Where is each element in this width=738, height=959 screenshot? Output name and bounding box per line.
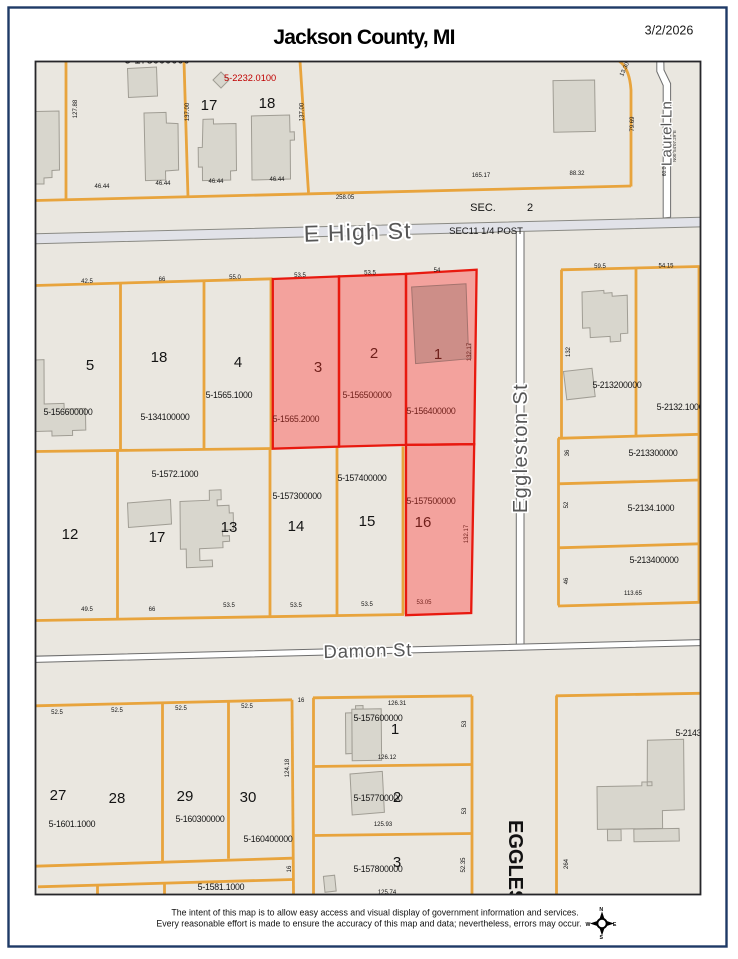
svg-text:3: 3 [314, 359, 322, 376]
svg-text:17: 17 [149, 529, 166, 546]
svg-text:N: N [599, 907, 603, 913]
svg-text:5-157700000: 5-157700000 [353, 793, 402, 803]
svg-text:E: E [613, 922, 617, 928]
svg-text:Laurel Ln: Laurel Ln [659, 101, 676, 166]
svg-text:5-134100000: 5-134100000 [140, 412, 189, 422]
svg-text:5-160300000: 5-160300000 [175, 814, 224, 824]
svg-text:5-156600000: 5-156600000 [43, 407, 92, 417]
svg-text:55.0: 55.0 [229, 275, 241, 281]
svg-text:27: 27 [50, 787, 67, 804]
svg-text:137.00: 137.00 [185, 102, 191, 121]
svg-text:52.5: 52.5 [111, 708, 123, 714]
svg-text:2: 2 [370, 345, 378, 362]
svg-text:5-2134.1000: 5-2134.1000 [628, 503, 675, 513]
svg-text:165.17: 165.17 [472, 173, 491, 179]
svg-text:1: 1 [434, 346, 442, 363]
svg-text:264: 264 [564, 858, 570, 869]
svg-text:28: 28 [109, 790, 126, 807]
svg-text:52.5: 52.5 [175, 706, 187, 712]
svg-text:52: 52 [564, 501, 570, 508]
svg-text:52.5: 52.5 [51, 710, 63, 716]
svg-text:13: 13 [221, 519, 238, 536]
svg-text:5-156400000: 5-156400000 [406, 406, 455, 416]
svg-text:5-1565.2000: 5-1565.2000 [273, 414, 320, 424]
svg-text:5-1581.1000: 5-1581.1000 [198, 882, 245, 892]
svg-text:127.88: 127.88 [73, 99, 79, 118]
svg-text:124.18: 124.18 [285, 758, 291, 777]
svg-text:5-1572.1000: 5-1572.1000 [152, 469, 199, 479]
svg-text:SEC11 1/4 POST: SEC11 1/4 POST [449, 226, 523, 237]
svg-text:5-2132.1000: 5-2132.1000 [657, 402, 704, 412]
svg-text:E High St: E High St [303, 217, 412, 246]
svg-text:53.05: 53.05 [416, 600, 432, 606]
svg-text:12: 12 [62, 526, 79, 543]
svg-text:5-160400000: 5-160400000 [243, 834, 292, 844]
svg-text:18: 18 [259, 95, 276, 112]
svg-text:29: 29 [177, 788, 194, 805]
svg-text:5-156500000: 5-156500000 [342, 390, 391, 400]
svg-text:SEC.: SEC. [470, 202, 496, 214]
svg-text:5-2232.0100: 5-2232.0100 [224, 73, 276, 83]
svg-text:5-1601.1000: 5-1601.1000 [49, 819, 96, 829]
svg-text:42.5: 42.5 [81, 279, 93, 285]
svg-text:66: 66 [149, 607, 156, 613]
svg-text:46.44: 46.44 [94, 184, 110, 190]
svg-text:3/2/2026: 3/2/2026 [645, 24, 694, 38]
svg-text:132.17: 132.17 [467, 342, 473, 361]
svg-text:5-213400000: 5-213400000 [629, 555, 678, 565]
svg-text:132.17: 132.17 [464, 524, 470, 543]
svg-text:17: 17 [201, 97, 218, 114]
svg-text:137.00: 137.00 [300, 102, 306, 121]
svg-text:59.5: 59.5 [594, 264, 606, 270]
svg-text:113.65: 113.65 [624, 591, 643, 597]
svg-text:14: 14 [288, 518, 305, 535]
svg-text:5-157600000: 5-157600000 [353, 713, 402, 723]
svg-text:5-1565.1000: 5-1565.1000 [206, 390, 253, 400]
svg-text:126.12: 126.12 [378, 755, 397, 761]
svg-text:Every reasonable effort is mad: Every reasonable effort is made to ensur… [156, 919, 581, 929]
svg-text:52.35: 52.35 [461, 857, 467, 873]
svg-text:W: W [586, 922, 591, 928]
svg-text:125.93: 125.93 [374, 822, 393, 828]
svg-text:52.5: 52.5 [241, 704, 253, 710]
svg-text:5: 5 [86, 357, 94, 374]
svg-text:53.5: 53.5 [223, 603, 235, 609]
svg-text:53.5: 53.5 [364, 271, 376, 277]
svg-text:16: 16 [287, 865, 293, 872]
svg-text:54: 54 [434, 268, 441, 274]
svg-text:46: 46 [564, 577, 570, 584]
svg-text:S: S [599, 935, 603, 941]
svg-text:The intent of this map is to a: The intent of this map is to allow easy … [171, 908, 578, 918]
svg-text:126.31: 126.31 [388, 701, 407, 707]
svg-text:53.5: 53.5 [361, 602, 373, 608]
svg-text:258.05: 258.05 [336, 195, 355, 201]
svg-text:Damon St: Damon St [323, 639, 412, 662]
svg-text:1: 1 [391, 721, 399, 738]
svg-text:46.44: 46.44 [269, 177, 285, 183]
svg-text:15: 15 [359, 513, 376, 530]
svg-text:53: 53 [462, 720, 468, 727]
svg-text:5-213200000: 5-213200000 [592, 380, 641, 390]
svg-text:18: 18 [151, 349, 168, 366]
svg-text:30: 30 [240, 789, 257, 806]
svg-text:53.5: 53.5 [294, 273, 306, 279]
svg-text:36: 36 [565, 449, 571, 456]
svg-text:46.44: 46.44 [208, 179, 224, 185]
svg-text:46.44: 46.44 [155, 181, 171, 187]
svg-text:53.5: 53.5 [290, 603, 302, 609]
svg-text:53: 53 [462, 807, 468, 814]
svg-text:2: 2 [527, 202, 533, 214]
svg-text:5-157400000: 5-157400000 [337, 473, 386, 483]
svg-text:54.15: 54.15 [658, 264, 674, 270]
svg-text:5-157500000: 5-157500000 [406, 496, 455, 506]
svg-text:Jackson County, MI: Jackson County, MI [273, 26, 454, 49]
svg-text:66: 66 [159, 277, 166, 283]
svg-text:5-157300000: 5-157300000 [272, 491, 321, 501]
svg-text:5-213300000: 5-213300000 [628, 448, 677, 458]
svg-text:16: 16 [298, 698, 305, 704]
svg-text:Eggleston St: Eggleston St [510, 383, 532, 513]
svg-text:16: 16 [415, 514, 432, 531]
svg-text:132: 132 [566, 346, 572, 357]
svg-text:49.5: 49.5 [81, 607, 93, 613]
svg-text:88.32: 88.32 [569, 171, 585, 177]
svg-text:4: 4 [234, 354, 242, 371]
svg-text:5-157800000: 5-157800000 [353, 864, 402, 874]
svg-text:79.69: 79.69 [630, 116, 636, 132]
